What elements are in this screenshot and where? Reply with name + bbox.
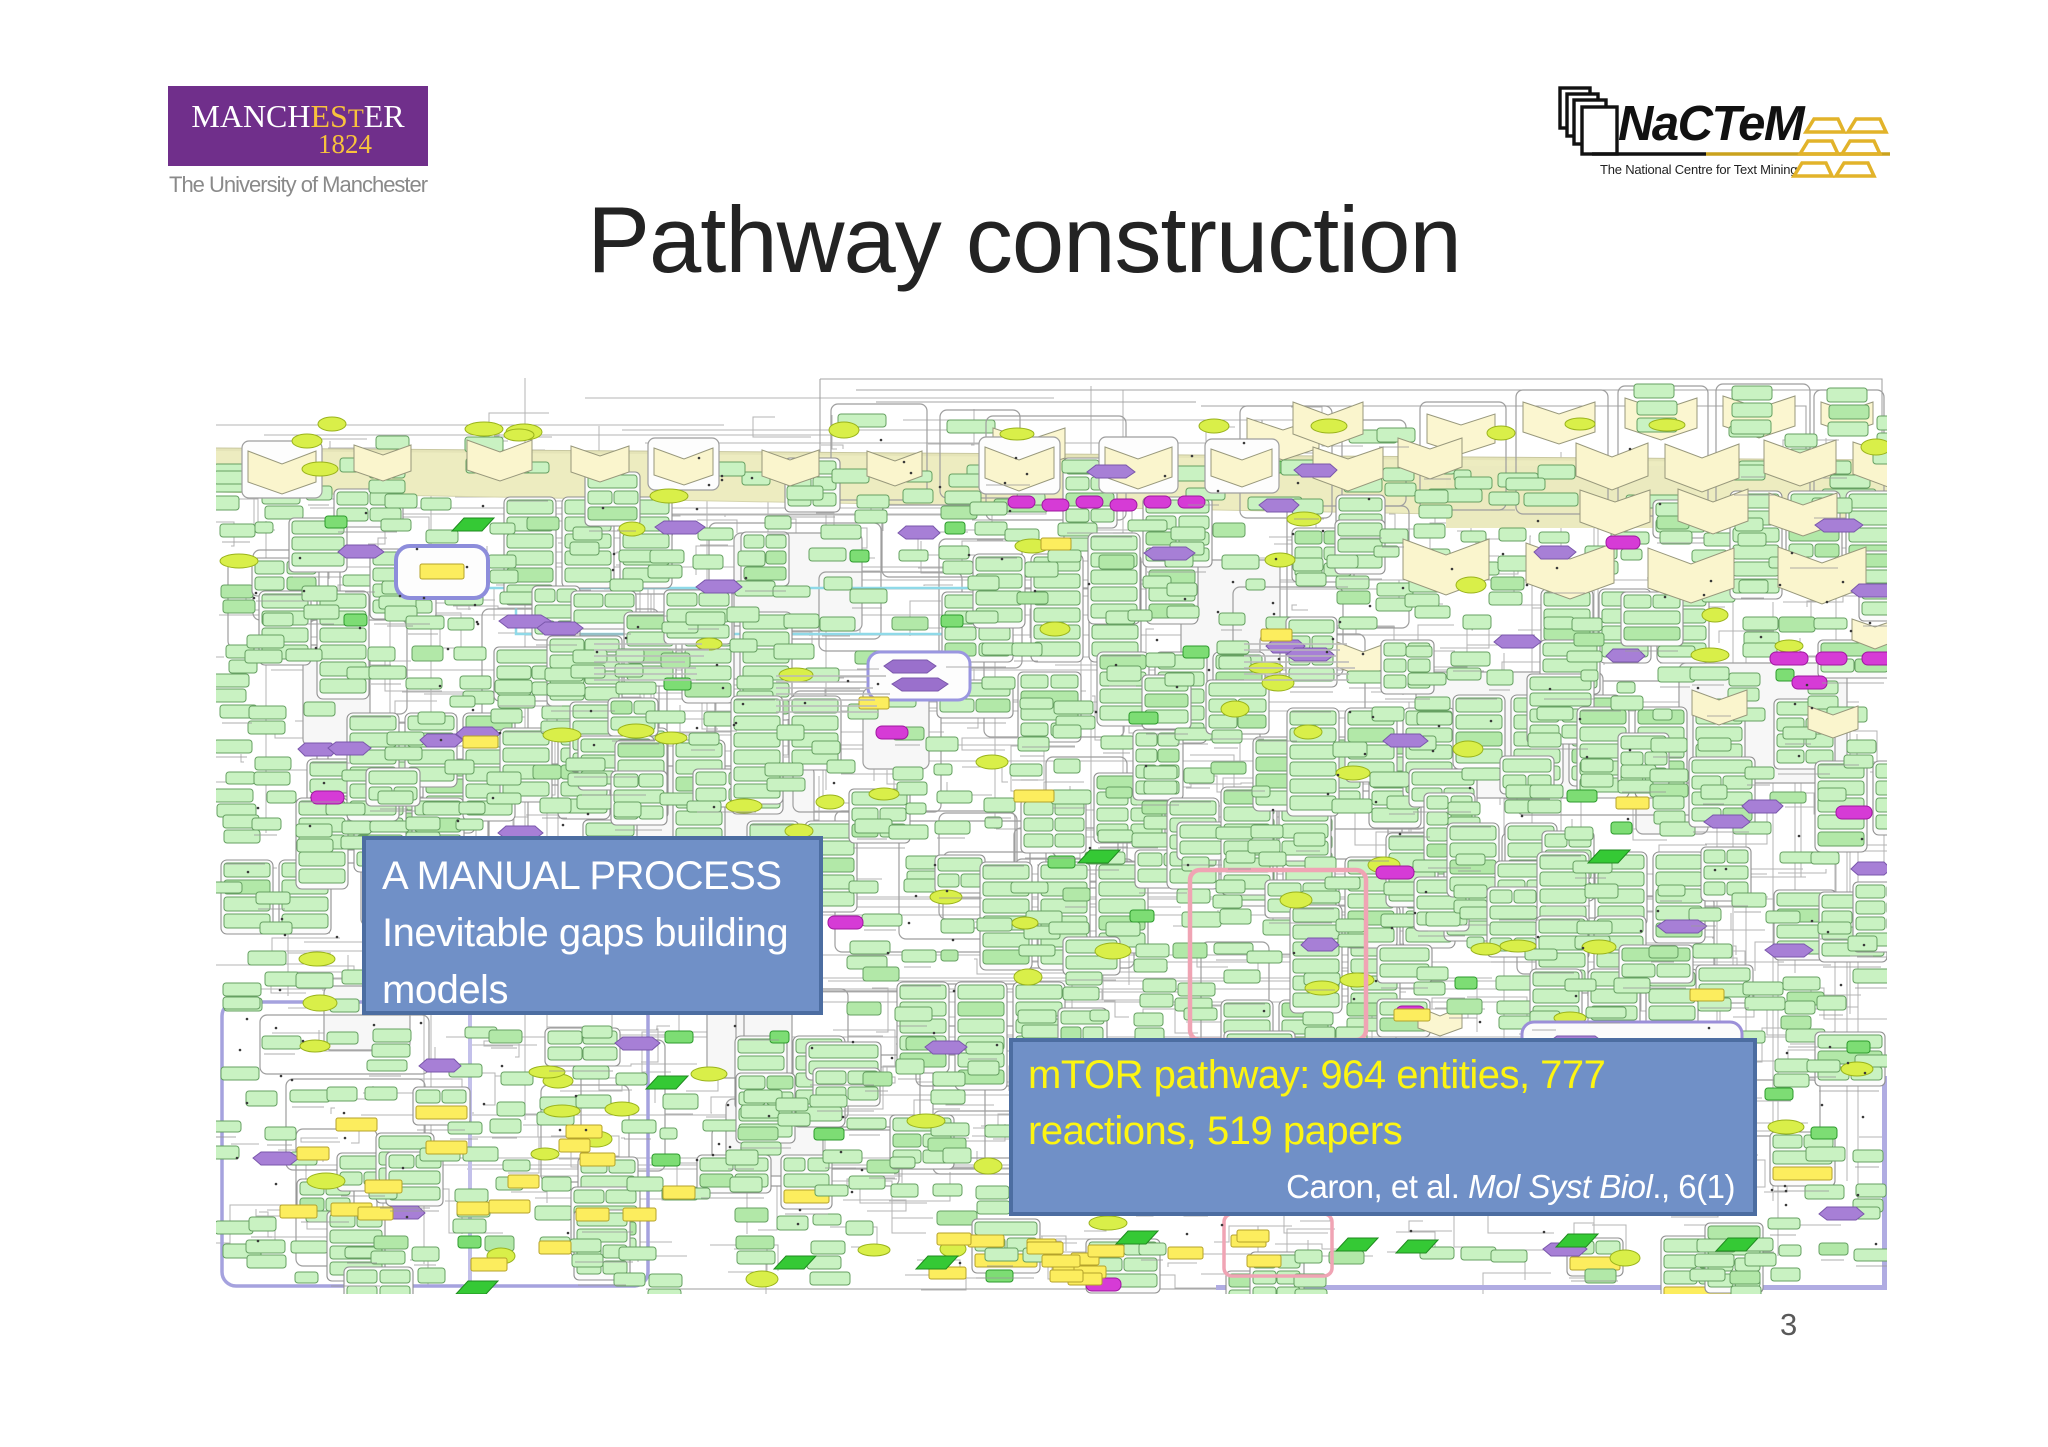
svg-text:NaCTeM: NaCTeM xyxy=(1618,97,1806,151)
svg-text:The National Centre for Text M: The National Centre for Text Mining xyxy=(1600,162,1797,177)
